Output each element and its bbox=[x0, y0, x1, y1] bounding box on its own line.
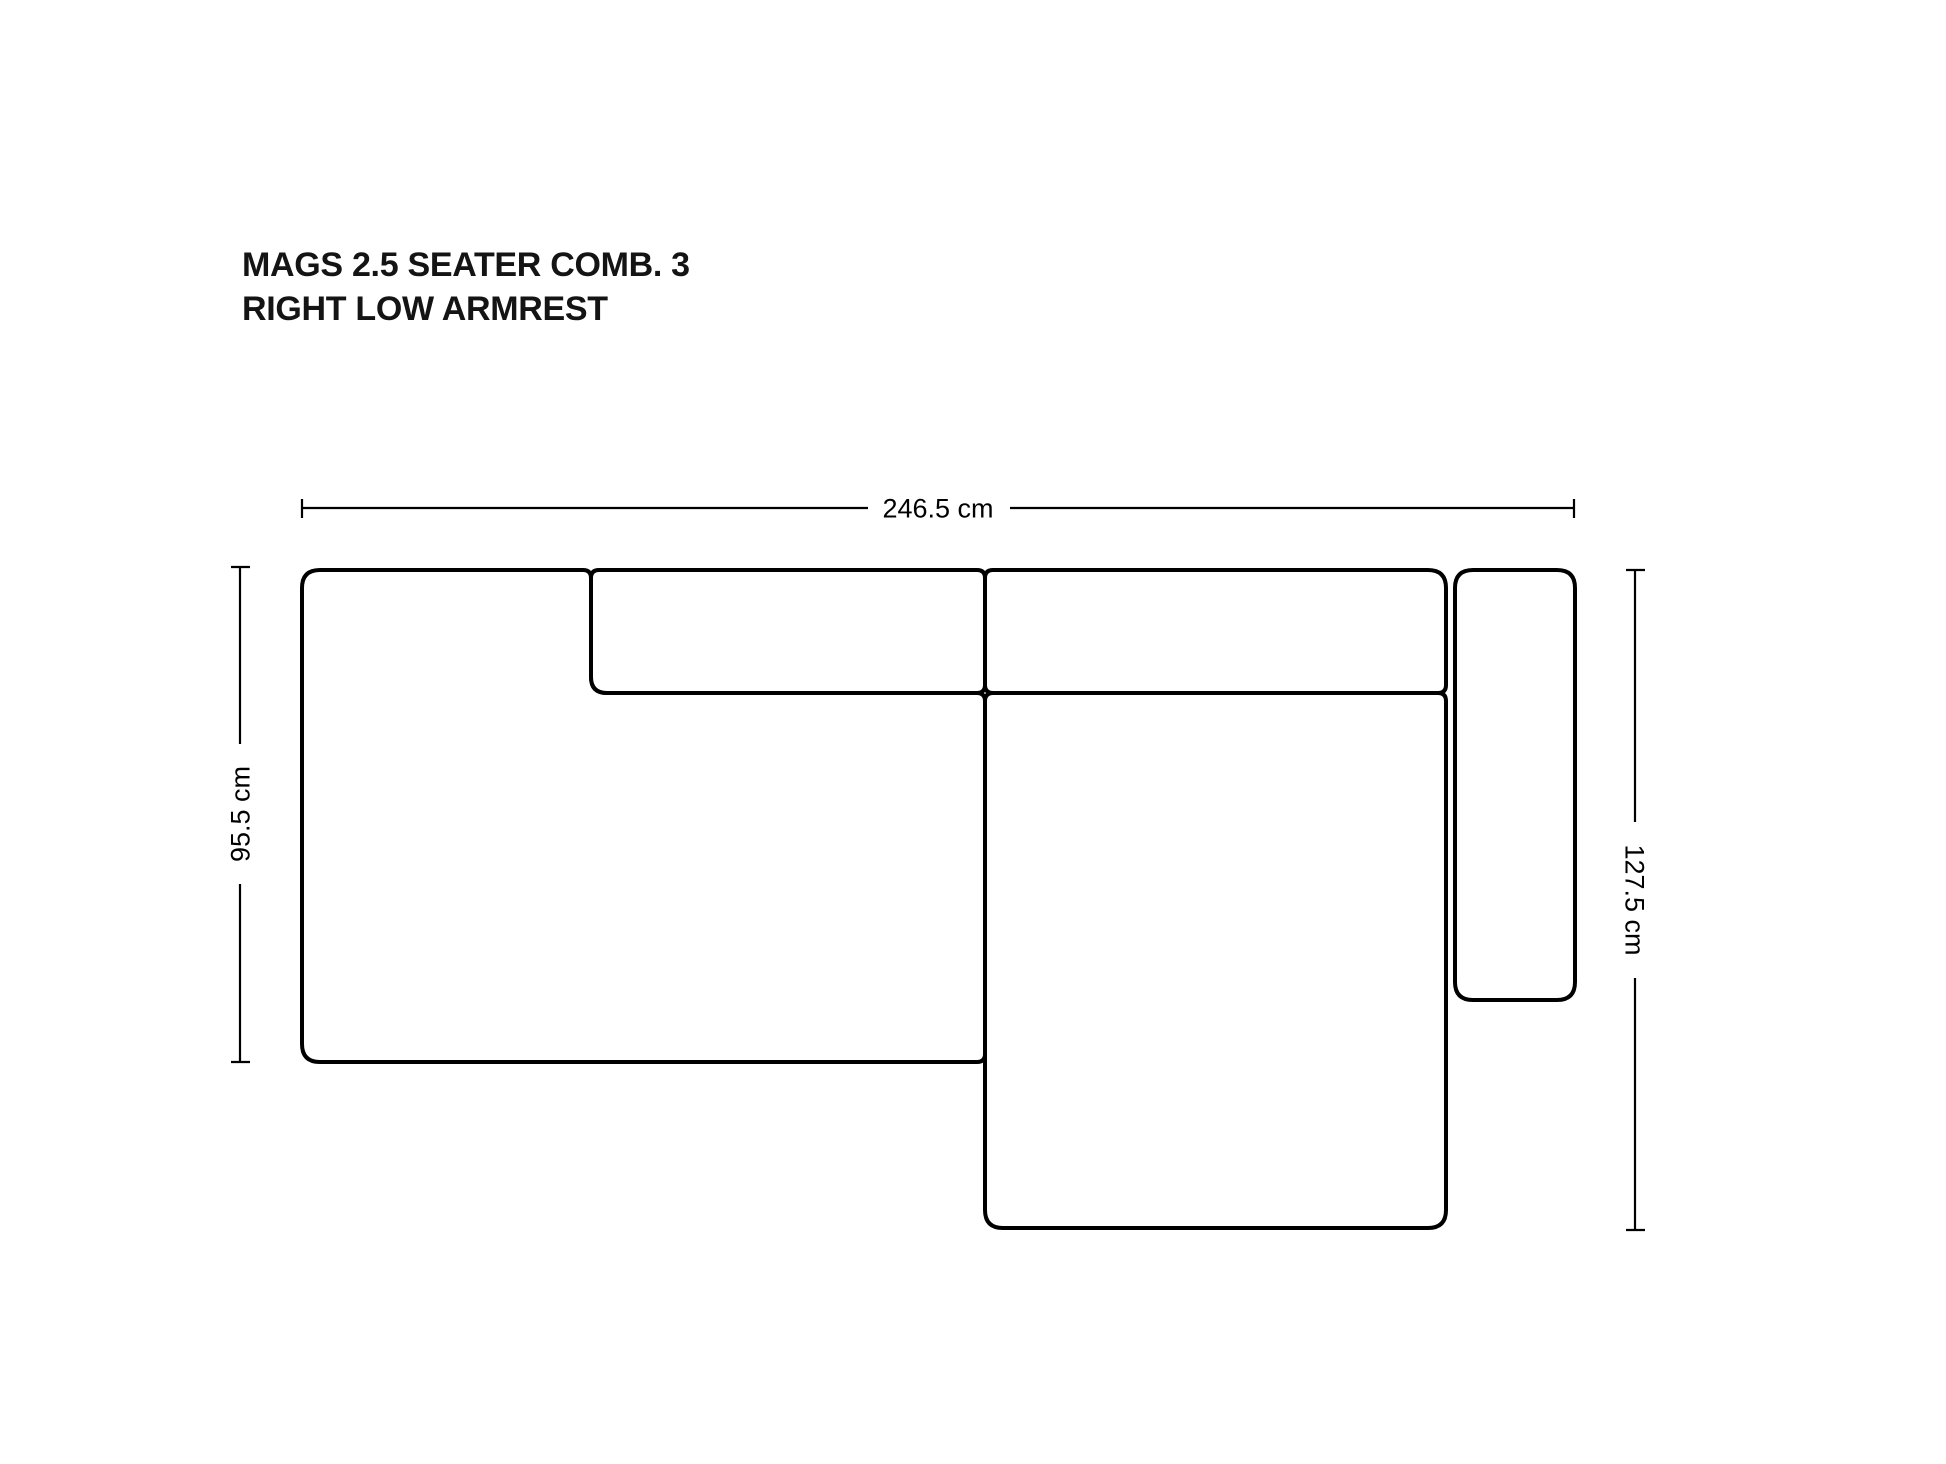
dimension-right-depth: 127.5 cm bbox=[1620, 570, 1650, 1230]
back-cushion-right-outline bbox=[985, 570, 1446, 693]
chaise-module-outline bbox=[985, 693, 1446, 1228]
dimension-left-depth: 95.5 cm bbox=[225, 567, 255, 1062]
back-cushion-left-outline bbox=[591, 570, 985, 693]
dimension-total-width-label: 246.5 cm bbox=[882, 493, 993, 523]
dimension-total-width: 246.5 cm bbox=[302, 493, 1574, 523]
armrest-outline bbox=[1455, 570, 1575, 1000]
sofa-dimension-diagram: 246.5 cm 95.5 cm 127.5 cm bbox=[0, 0, 1946, 1464]
sofa-outline-group bbox=[302, 570, 1575, 1228]
diagram-canvas: MAGS 2.5 SEATER COMB. 3 RIGHT LOW ARMRES… bbox=[0, 0, 1946, 1464]
dimension-right-depth-label: 127.5 cm bbox=[1620, 844, 1650, 955]
dimension-left-depth-label: 95.5 cm bbox=[225, 766, 255, 862]
